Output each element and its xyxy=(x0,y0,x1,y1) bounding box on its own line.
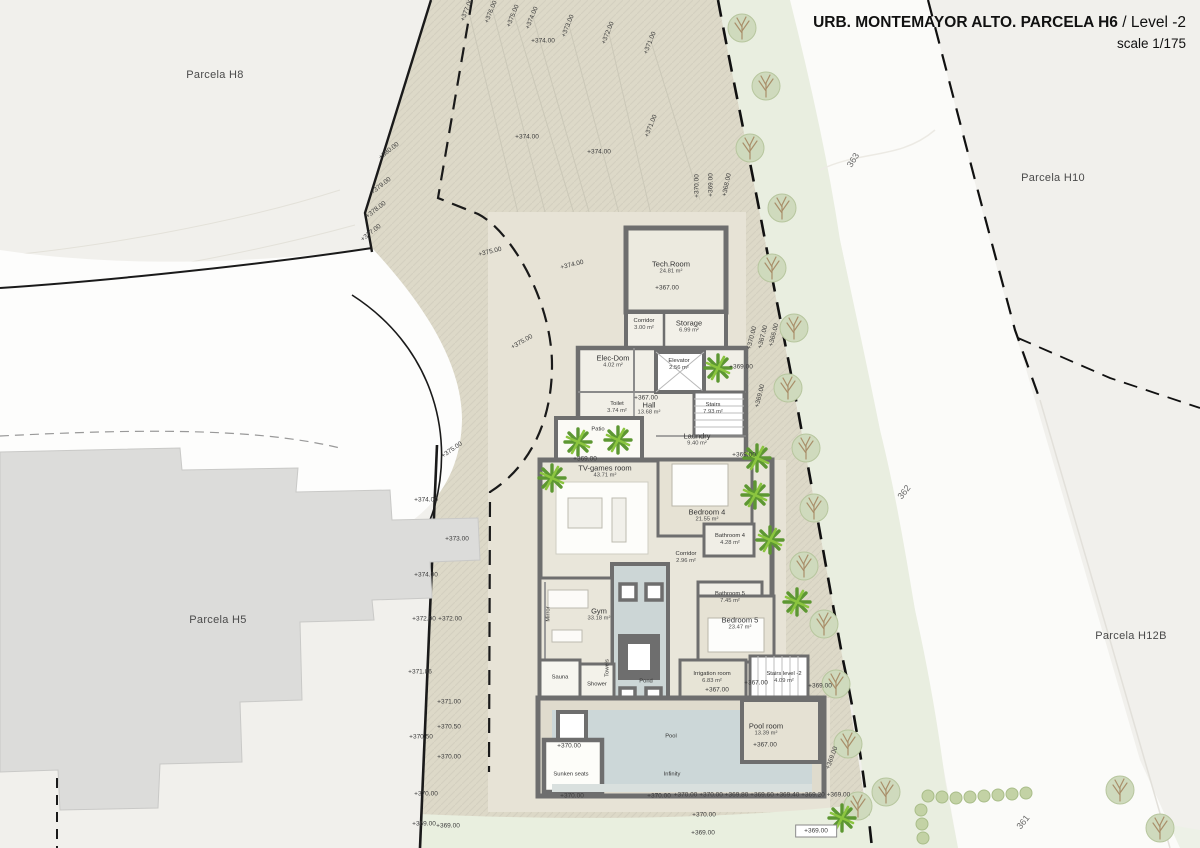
palm-icon xyxy=(757,527,783,553)
planter xyxy=(620,584,636,600)
pond-planter-core xyxy=(628,644,650,670)
pool-room xyxy=(742,700,820,762)
palm-icon xyxy=(705,355,731,381)
tree-icon xyxy=(810,610,838,638)
tree-icon xyxy=(736,134,764,162)
tree-icon xyxy=(774,374,802,402)
tree-icon xyxy=(728,14,756,42)
bush-icon xyxy=(992,789,1004,801)
tree-icon xyxy=(872,778,900,806)
h10-dashed-boundary xyxy=(1018,338,1200,408)
bush-icon xyxy=(978,790,990,802)
palm-icon xyxy=(565,429,591,455)
tree-icon xyxy=(822,670,850,698)
gym-equipment xyxy=(552,630,582,642)
infinity-edge xyxy=(552,784,812,792)
corridor-storage xyxy=(626,312,726,348)
plan-title-main: URB. MONTEMAYOR ALTO. PARCELA H6 xyxy=(813,14,1118,31)
bathroom4 xyxy=(704,524,754,556)
tree-icon xyxy=(1146,814,1174,842)
gym-equipment xyxy=(548,590,588,608)
tree-icon xyxy=(790,552,818,580)
tree-icon xyxy=(1106,776,1134,804)
tech-room xyxy=(626,228,726,312)
bush-icon xyxy=(917,832,929,844)
site-plan: +377.00+376.00+375.00+374.00+373.00+372.… xyxy=(0,0,1200,848)
tree-icon xyxy=(768,194,796,222)
bush-icon xyxy=(950,792,962,804)
title-block: URB. MONTEMAYOR ALTO. PARCELA H6 / Level… xyxy=(813,14,1186,51)
stairs-level-2 xyxy=(750,656,808,702)
palm-icon xyxy=(605,427,631,453)
palm-icon xyxy=(784,589,810,615)
tree-icon xyxy=(800,494,828,522)
bush-icon xyxy=(922,790,934,802)
palm-icon xyxy=(742,482,768,508)
tree-icon xyxy=(780,314,808,342)
plan-title: URB. MONTEMAYOR ALTO. PARCELA H6 / Level… xyxy=(813,14,1186,32)
planter xyxy=(646,584,662,600)
plan-title-level: / Level -2 xyxy=(1118,14,1186,31)
palm-icon xyxy=(829,805,855,831)
bush-icon xyxy=(936,791,948,803)
sofa xyxy=(568,498,602,528)
bush-icon xyxy=(915,804,927,816)
plan-scale: scale 1/175 xyxy=(813,36,1186,51)
tree-icon xyxy=(834,730,862,758)
palm-icon xyxy=(539,465,565,491)
palm-icon xyxy=(744,445,770,471)
tree-icon xyxy=(792,434,820,462)
tree-icon xyxy=(758,254,786,282)
bush-icon xyxy=(1020,787,1032,799)
bed xyxy=(708,618,764,652)
bed xyxy=(672,464,728,506)
bush-icon xyxy=(916,818,928,830)
spa-square xyxy=(558,712,586,740)
bush-icon xyxy=(1006,788,1018,800)
tree-icon xyxy=(752,72,780,100)
sofa xyxy=(612,498,626,542)
bush-icon xyxy=(964,791,976,803)
site-plan-drawing xyxy=(0,0,1200,848)
